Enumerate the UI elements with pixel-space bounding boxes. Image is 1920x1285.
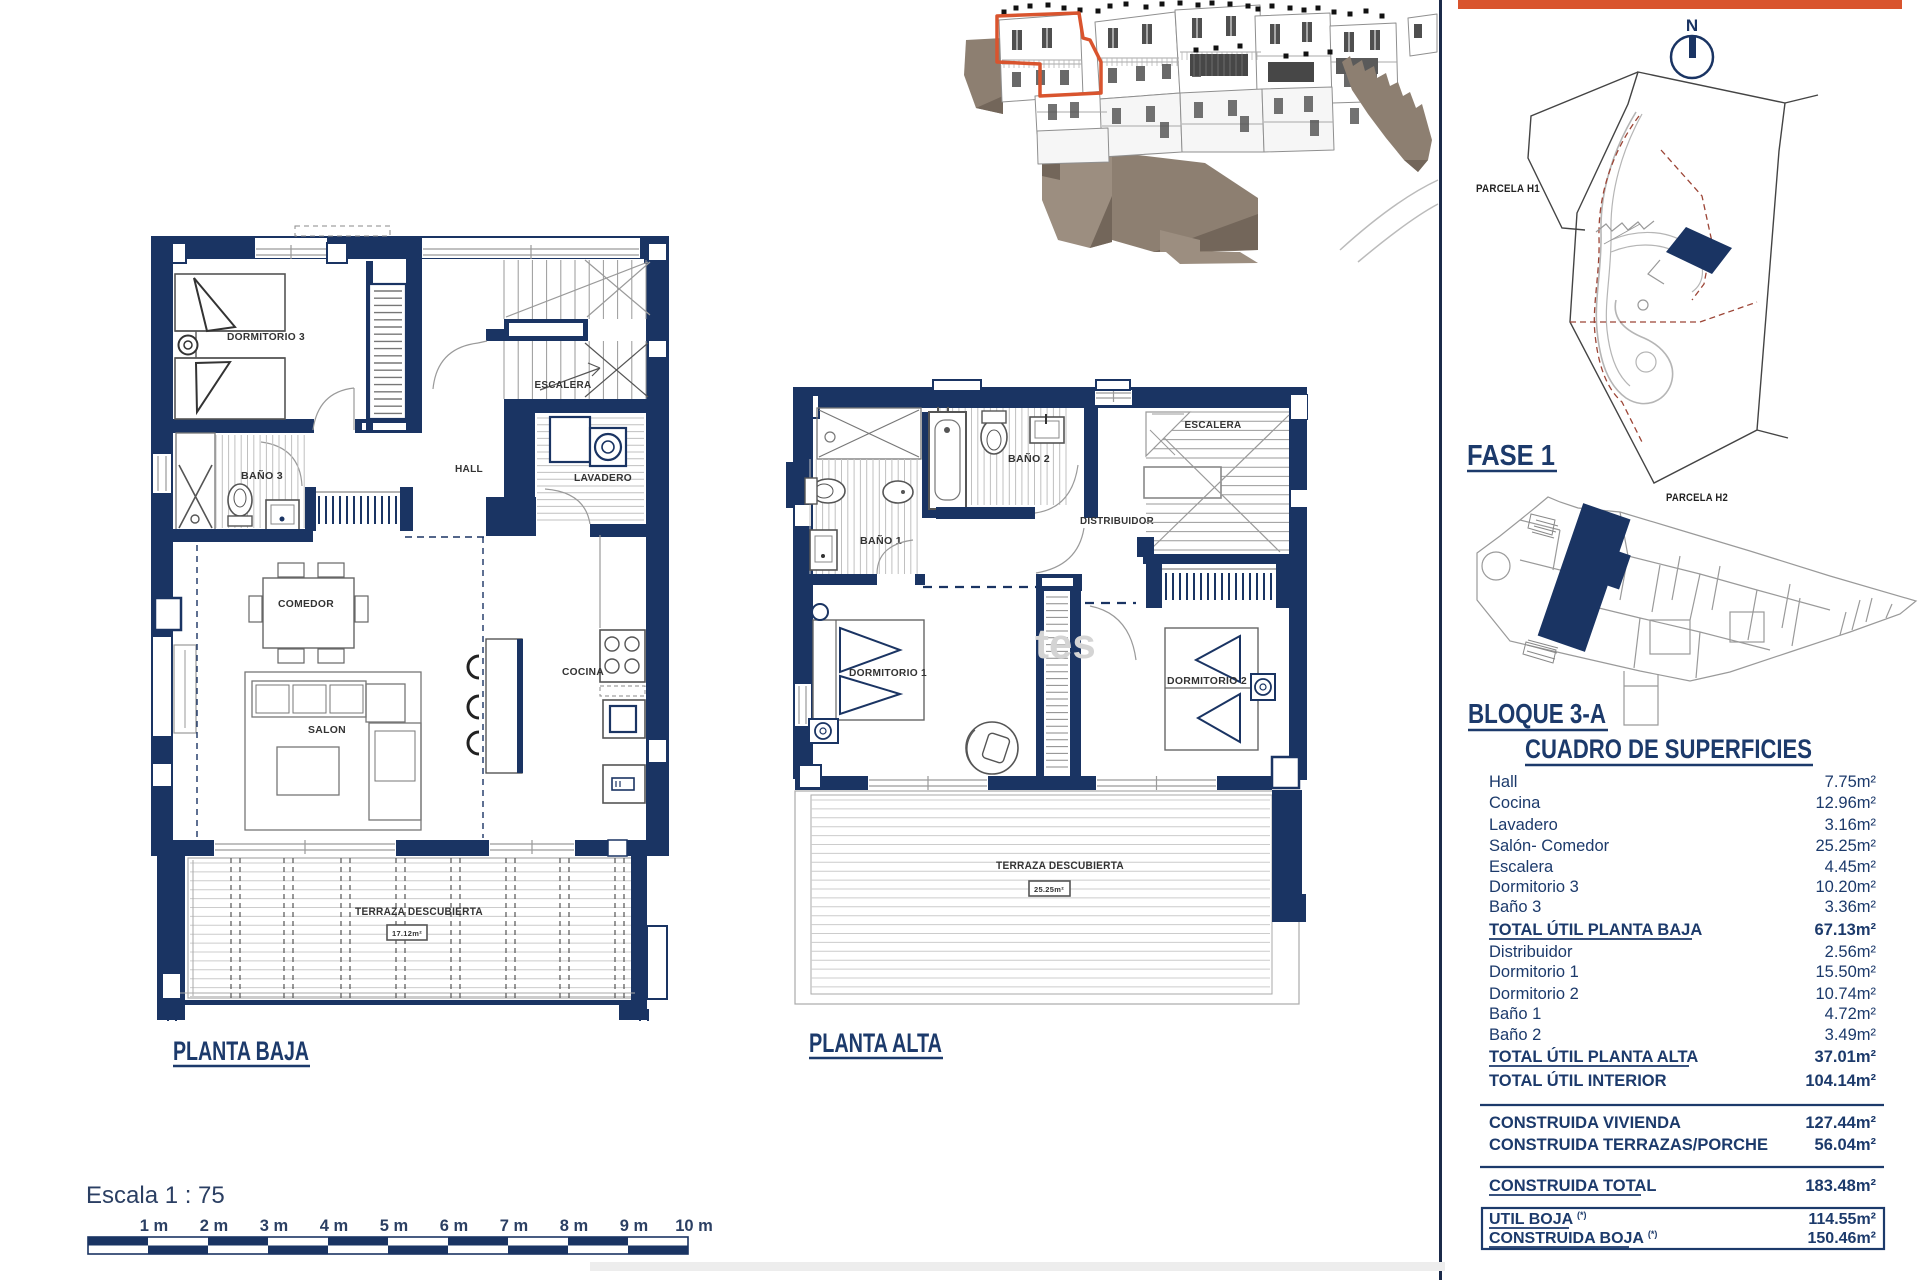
svg-text:37.01m²: 37.01m²	[1815, 1048, 1877, 1066]
svg-text:PLANTA ALTA: PLANTA ALTA	[809, 1028, 942, 1058]
svg-text:150.46m²: 150.46m²	[1808, 1230, 1877, 1247]
svg-text:3.36m²: 3.36m²	[1825, 898, 1877, 916]
svg-text:25.25m²: 25.25m²	[1815, 837, 1876, 855]
svg-text:5 m: 5 m	[380, 1217, 408, 1235]
svg-text:HALL: HALL	[455, 463, 483, 475]
svg-text:Baño 1: Baño 1	[1489, 1005, 1541, 1023]
svg-text:114.55m²: 114.55m²	[1808, 1211, 1876, 1228]
svg-text:Lavadero: Lavadero	[1489, 816, 1558, 834]
svg-text:Dormitorio 2: Dormitorio 2	[1489, 985, 1579, 1003]
svg-text:67.13m²: 67.13m²	[1815, 921, 1877, 939]
svg-text:1 m: 1 m	[140, 1217, 168, 1235]
svg-text:Escalera: Escalera	[1489, 858, 1554, 876]
svg-text:9 m: 9 m	[620, 1217, 648, 1235]
svg-text:N: N	[1686, 16, 1698, 35]
svg-text:BLOQUE 3-A: BLOQUE 3-A	[1468, 698, 1606, 729]
svg-text:Hall: Hall	[1489, 773, 1517, 791]
svg-text:ESCALERA: ESCALERA	[1185, 419, 1242, 431]
svg-text:TERRAZA DESCUBIERTA: TERRAZA DESCUBIERTA	[996, 860, 1124, 872]
svg-text:Dormitorio 3: Dormitorio 3	[1489, 878, 1579, 896]
svg-text:4.45m²: 4.45m²	[1825, 858, 1877, 876]
svg-text:BAÑO 2: BAÑO 2	[1008, 452, 1050, 465]
svg-text:CONSTRUIDA VIVIENDA: CONSTRUIDA VIVIENDA	[1489, 1114, 1681, 1132]
svg-text:CONSTRUIDA TOTAL: CONSTRUIDA TOTAL	[1489, 1177, 1656, 1195]
svg-text:FASE 1: FASE 1	[1467, 440, 1555, 472]
svg-text:TOTAL ÚTIL PLANTA BAJA: TOTAL ÚTIL PLANTA BAJA	[1489, 920, 1702, 939]
svg-text:TOTAL ÚTIL INTERIOR: TOTAL ÚTIL INTERIOR	[1489, 1071, 1667, 1090]
svg-text:17.12m²: 17.12m²	[392, 929, 422, 938]
svg-text:2.56m²: 2.56m²	[1825, 943, 1877, 961]
svg-text:127.44m²: 127.44m²	[1805, 1114, 1876, 1132]
svg-text:COCINA: COCINA	[562, 666, 604, 678]
svg-text:4.72m²: 4.72m²	[1825, 1005, 1877, 1023]
svg-text:PARCELA H2: PARCELA H2	[1666, 492, 1728, 504]
svg-text:183.48m²: 183.48m²	[1805, 1177, 1876, 1195]
svg-text:6 m: 6 m	[440, 1217, 468, 1235]
svg-text:DORMITORIO 1: DORMITORIO 1	[849, 667, 927, 679]
svg-text:Dormitorio 1: Dormitorio 1	[1489, 963, 1579, 981]
svg-text:Distribuidor: Distribuidor	[1489, 943, 1573, 961]
svg-text:25.25m²: 25.25m²	[1034, 885, 1064, 894]
svg-text:PARCELA H1: PARCELA H1	[1476, 183, 1540, 195]
svg-text:Salón- Comedor: Salón- Comedor	[1489, 837, 1610, 855]
svg-text:104.14m²: 104.14m²	[1805, 1072, 1876, 1090]
svg-text:56.04m²: 56.04m²	[1815, 1136, 1877, 1154]
svg-text:10 m: 10 m	[675, 1217, 713, 1235]
svg-text:3 m: 3 m	[260, 1217, 288, 1235]
svg-text:DORMITORIO 2: DORMITORIO 2	[1167, 675, 1247, 687]
svg-text:ESCALERA: ESCALERA	[535, 379, 592, 391]
svg-text:4 m: 4 m	[320, 1217, 348, 1235]
svg-text:CONSTRUIDA BOJA (*): CONSTRUIDA BOJA (*)	[1489, 1229, 1657, 1247]
svg-text:UTIL BOJA (*): UTIL BOJA (*)	[1489, 1210, 1587, 1228]
svg-text:15.50m²: 15.50m²	[1815, 963, 1876, 981]
svg-text:PLANTA BAJA: PLANTA BAJA	[173, 1036, 309, 1066]
svg-text:DISTRIBUIDOR: DISTRIBUIDOR	[1080, 515, 1154, 527]
svg-text:DORMITORIO 3: DORMITORIO 3	[227, 331, 305, 343]
svg-text:LAVADERO: LAVADERO	[574, 472, 632, 484]
svg-text:8 m: 8 m	[560, 1217, 588, 1235]
svg-text:TERRAZA DESCUBIERTA: TERRAZA DESCUBIERTA	[355, 906, 483, 918]
svg-text:7.75m²: 7.75m²	[1825, 773, 1877, 791]
svg-text:COMEDOR: COMEDOR	[278, 598, 334, 610]
svg-text:12.96m²: 12.96m²	[1815, 794, 1876, 812]
svg-text:2 m: 2 m	[200, 1217, 228, 1235]
svg-text:CONSTRUIDA TERRAZAS/PORCHE: CONSTRUIDA TERRAZAS/PORCHE	[1489, 1136, 1768, 1154]
svg-text:TOTAL ÚTIL PLANTA ALTA: TOTAL ÚTIL PLANTA ALTA	[1489, 1047, 1698, 1066]
svg-text:BAÑO 3: BAÑO 3	[241, 469, 283, 482]
svg-text:3.16m²: 3.16m²	[1825, 816, 1877, 834]
svg-text:CUADRO DE SUPERFICIES: CUADRO DE SUPERFICIES	[1525, 734, 1812, 764]
svg-text:Cocina: Cocina	[1489, 794, 1541, 812]
svg-text:Baño 2: Baño 2	[1489, 1026, 1541, 1044]
svg-text:10.74m²: 10.74m²	[1815, 985, 1876, 1003]
svg-text:10.20m²: 10.20m²	[1815, 878, 1876, 896]
svg-text:7 m: 7 m	[500, 1217, 528, 1235]
svg-text:tes: tes	[1035, 620, 1096, 667]
svg-text:SALON: SALON	[308, 724, 346, 736]
svg-text:Escala 1 : 75: Escala 1 : 75	[86, 1182, 225, 1209]
svg-text:Baño 3: Baño 3	[1489, 898, 1541, 916]
svg-text:3.49m²: 3.49m²	[1825, 1026, 1877, 1044]
